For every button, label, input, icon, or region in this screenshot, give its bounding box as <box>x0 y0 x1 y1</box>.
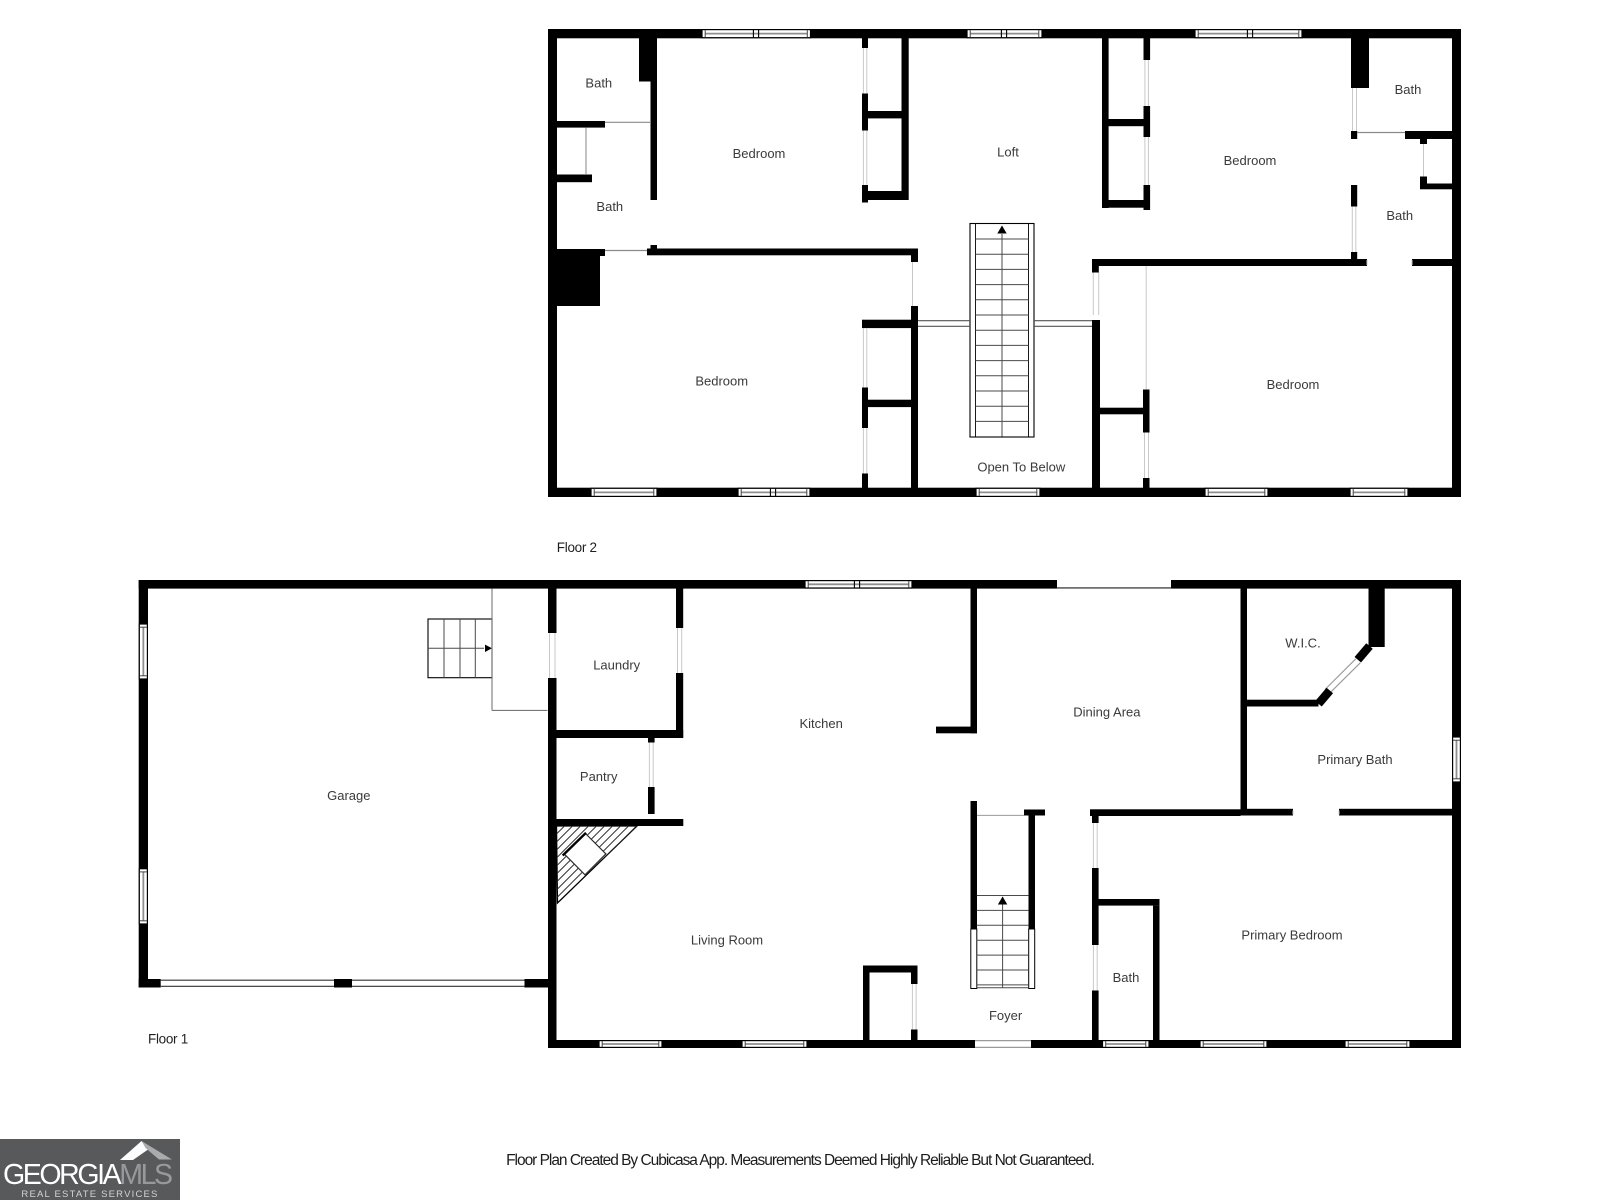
svg-text:Floor 1: Floor 1 <box>148 1032 188 1047</box>
svg-text:Garage: Garage <box>327 788 370 803</box>
svg-text:W.I.C.: W.I.C. <box>1285 636 1320 651</box>
svg-text:Open To Below: Open To Below <box>977 460 1066 475</box>
svg-text:Bedroom: Bedroom <box>1267 377 1320 392</box>
svg-text:Bedroom: Bedroom <box>695 374 748 389</box>
svg-text:GEORGIAMLS: GEORGIAMLS <box>3 1159 172 1191</box>
svg-text:Laundry: Laundry <box>593 658 640 673</box>
svg-text:Pantry: Pantry <box>580 769 618 784</box>
svg-text:Bath: Bath <box>1386 208 1413 223</box>
svg-text:Floor 2: Floor 2 <box>557 540 597 555</box>
svg-text:Living Room: Living Room <box>691 932 763 947</box>
svg-text:Bath: Bath <box>596 199 623 214</box>
svg-text:Primary Bath: Primary Bath <box>1317 752 1392 767</box>
svg-text:Bedroom: Bedroom <box>733 146 786 161</box>
svg-text:Foyer: Foyer <box>989 1008 1023 1023</box>
svg-text:Loft: Loft <box>997 145 1019 160</box>
svg-text:REAL ESTATE SERVICES: REAL ESTATE SERVICES <box>21 1189 158 1200</box>
svg-text:Primary Bedroom: Primary Bedroom <box>1241 928 1342 943</box>
svg-text:Kitchen: Kitchen <box>800 716 843 731</box>
svg-text:Bedroom: Bedroom <box>1224 153 1277 168</box>
svg-text:Bath: Bath <box>585 76 612 91</box>
svg-text:Bath: Bath <box>1113 970 1140 985</box>
svg-text:Dining Area: Dining Area <box>1073 705 1141 720</box>
svg-text:Floor Plan Created By Cubicasa: Floor Plan Created By Cubicasa App. Meas… <box>506 1152 1094 1169</box>
svg-text:Bath: Bath <box>1395 82 1422 97</box>
